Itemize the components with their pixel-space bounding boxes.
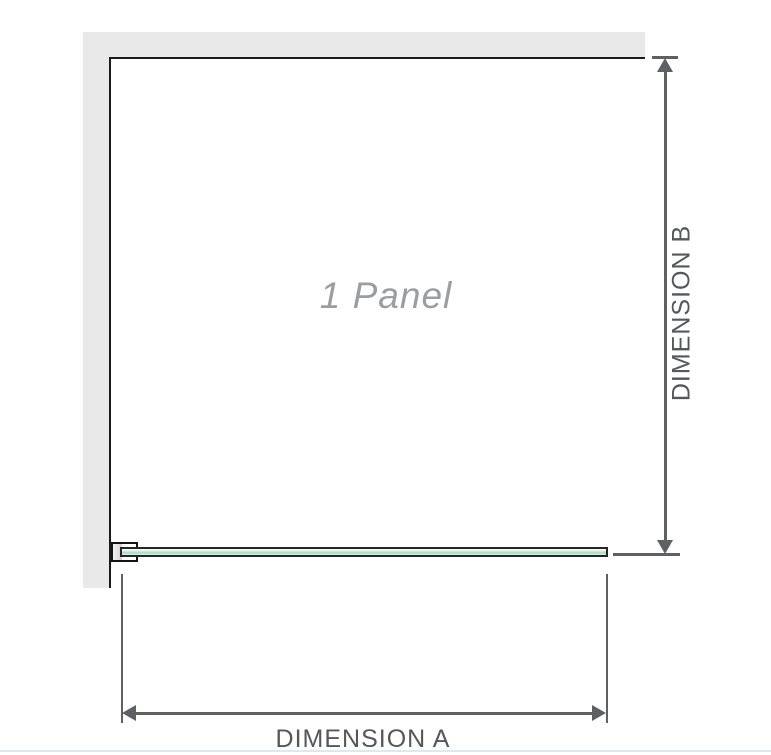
wall-inner-edge-left xyxy=(109,57,111,588)
wall-left-segment xyxy=(83,32,109,588)
panel-label: 1 Panel xyxy=(320,275,453,317)
dimension-b-cap-bottom xyxy=(613,553,680,556)
extension-line-right xyxy=(606,574,608,723)
dimension-a-label: DIMENSION A xyxy=(276,727,451,752)
dimension-a-arrow-right-icon xyxy=(592,705,606,721)
wall-top-segment xyxy=(83,32,645,57)
dimension-a-arrow-left-icon xyxy=(122,705,136,721)
shower-panel-diagram: 1 Panel DIMENSION B DIMENSION A xyxy=(0,0,771,755)
glass-panel xyxy=(120,547,608,557)
dimension-a-line xyxy=(130,712,600,715)
dimension-b-arrow-up-icon xyxy=(657,58,673,72)
extension-line-left xyxy=(121,574,123,723)
page-bottom-rule xyxy=(0,750,771,752)
dimension-b-arrow-down-icon xyxy=(657,540,673,554)
wall-inner-edge-top xyxy=(109,57,645,59)
dimension-b-label: DIMENSION B xyxy=(670,225,695,401)
